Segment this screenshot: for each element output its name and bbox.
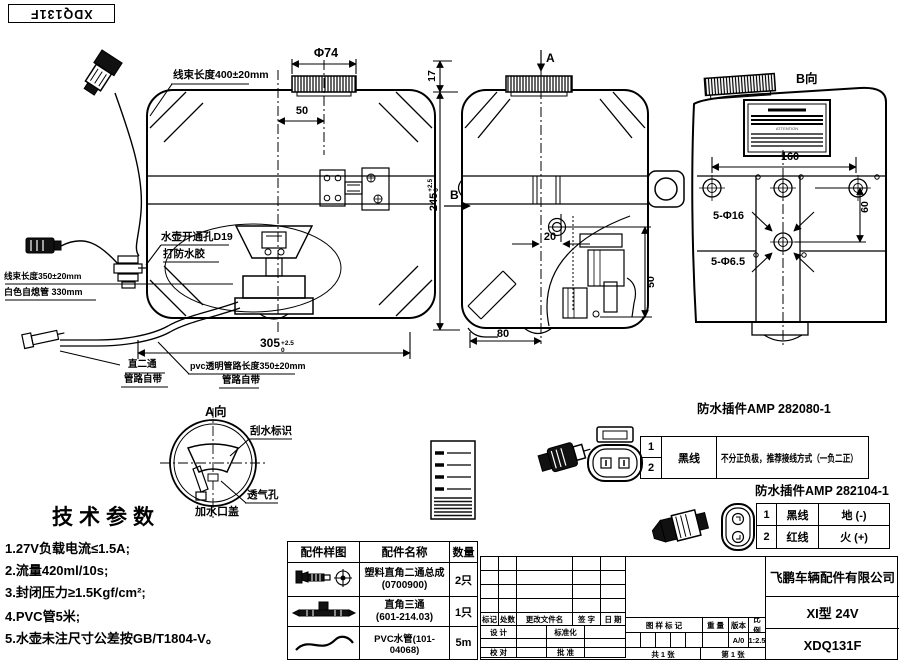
tee-fitting-icon [291, 599, 357, 625]
part-name-1: 塑料直角二通总成 (0700900) [360, 563, 450, 597]
drawing-number: XDQ131F [766, 629, 899, 660]
sensor-connector [26, 238, 61, 253]
sheet-count-row: 共 1 张 第 1 张 [626, 648, 766, 660]
check-row: 校 对 批 准 [481, 648, 626, 658]
elbow-fitting-icon [291, 565, 357, 595]
blank-row [481, 639, 626, 648]
harness-400-label: 线束长度400±20mm [173, 70, 269, 82]
tech-param-item: 2.流量420ml/10s; [5, 564, 108, 578]
middle-empty-box [626, 557, 766, 618]
conn1-wire-color: 黑线 [662, 437, 717, 478]
vent-hole-label: 透气孔 [247, 490, 279, 502]
sheet-number-stamp: XDQ131F [8, 4, 115, 23]
connector1-pictogram [537, 427, 642, 481]
mark-header-row: 图 样 标 记 重 量 版本 比 例 [626, 618, 766, 633]
tb-std: 标准化 [547, 626, 585, 639]
tech-param-item: 1.27V负载电流≤1.5A; [5, 542, 130, 556]
tb-sheet-total: 共 1 张 [626, 648, 701, 660]
tb-sign: 签 字 [573, 613, 601, 626]
tech-param-item: 4.PVC管5米; [5, 610, 80, 624]
dim-20: 20 [544, 231, 556, 243]
cap-diameter-dim: Φ74 [314, 47, 338, 61]
parts-table: 配件样图 配件名称 数量 塑料直角二通总成 (070 [287, 541, 478, 660]
a-view-title: A向 [205, 406, 227, 420]
conn1-pin-1: 1 [641, 437, 662, 458]
revision-grid [481, 557, 626, 613]
title-block-right: 飞鹏车辆配件有限公司 XI型 24V XDQ131F [766, 557, 899, 660]
tb-weight: 重 量 [703, 618, 729, 633]
side-view-drawing [444, 50, 684, 344]
tb-design: 设 计 [481, 626, 517, 639]
tb-check: 校 对 [481, 648, 517, 658]
tech-param-item: 3.封闭压力≥1.5Kgf/cm²; [5, 586, 146, 600]
part-qty-2: 1只 [450, 597, 477, 627]
part-name-3: PVC水管(101-04068) [360, 627, 450, 659]
tb-approve: 批 准 [547, 648, 585, 658]
tb-version-value: A/0 [729, 633, 749, 648]
conn2-pin-1: 1 [757, 504, 777, 526]
tee-label-line1: 直二通 [128, 360, 157, 370]
conn2-desc-2: 火 (+) [819, 526, 889, 548]
dim-80: 80 [497, 328, 509, 340]
part-qty-1: 2只 [450, 563, 477, 597]
connector1-title: 防水插件AMP 282080-1 [697, 403, 831, 417]
part-qty-3: 5m [450, 627, 477, 659]
design-row: 设 计 标准化 [481, 626, 626, 639]
engineering-drawing-sheet: XDQ131F 线束长度400±20mm Φ74 50 17 245+2.50 … [0, 0, 900, 660]
part-sample-hose [288, 627, 360, 659]
dim-305-value: 305 [260, 336, 280, 350]
front-view-drawing [22, 50, 435, 348]
dim-50-side: 50 [646, 267, 658, 297]
dim-17: 17 [427, 62, 439, 90]
model-name: XI型 24V [766, 597, 899, 629]
tb-file: 更改文件名 [517, 613, 573, 626]
tb-sample-mark: 图 样 标 记 [626, 618, 703, 633]
tb-mark: 标记 [481, 613, 499, 626]
tank-hole-label-line1: 水壶开通孔D19 [161, 232, 233, 244]
dim-160: 160 [781, 151, 799, 163]
part-sample-tee [288, 597, 360, 627]
tech-param-item: 5.水壶未注尺寸公差按GB/T1804-V。 [5, 632, 219, 646]
stamp-text: XDQ131F [30, 7, 93, 21]
conn1-note: 不分正负极，推荐接线方式（一负二正） [717, 437, 868, 478]
tb-sheet-no: 第 1 张 [701, 648, 766, 660]
connector2-pin-table: 1 黑线 地 (-) 2 红线 火 (+) [756, 503, 890, 549]
tech-params-title: 技术参数 [52, 506, 160, 529]
dim-245: 245+2.50 [426, 167, 442, 223]
parts-header-qty: 数量 [450, 542, 477, 563]
title-block: 标记 处数 更改文件名 签 字 日 期 设 计 标准化 校 对 批 准 [dat… [480, 556, 898, 660]
pvc-tube-label-line2: 管路自带 [222, 376, 260, 386]
parts-header-name: 配件名称 [360, 542, 450, 563]
dim-50-front: 50 [296, 105, 308, 117]
section-b-arrow-label: B [450, 189, 459, 202]
tank-hole-label-line2: 打防水胶 [163, 249, 205, 261]
dim-305-tolerance: +2.50 [281, 341, 294, 354]
conn2-wire-2: 红线 [777, 526, 819, 548]
connector1-pin-table: 1 2 黑线 不分正负极，推荐接线方式（一负二正） [640, 436, 869, 479]
part-sample-elbow [288, 563, 360, 597]
parts-header-sample: 配件样图 [288, 542, 360, 563]
tube-end-fitting [22, 326, 66, 348]
filler-cap-label: 加水口盖 [195, 506, 239, 518]
wiper-mark-label: 刮水标识 [250, 426, 292, 438]
tb-date: 日 期 [601, 613, 626, 626]
pump-harness-connector [79, 50, 122, 98]
tb-scale: 比 例 [749, 618, 766, 633]
attention-text: ATTENTION [776, 127, 798, 131]
connector2-title: 防水插件AMP 282104-1 [755, 485, 889, 499]
mark-value-row: A/0 1:2.5 [626, 633, 766, 648]
conn2-desc-1: 地 (-) [819, 504, 889, 526]
conn2-wire-1: 黑线 [777, 504, 819, 526]
tb-version: 版本 [729, 618, 749, 633]
holes-65-callout: 5-Φ6.5 [711, 256, 745, 268]
company-name: 飞鹏车辆配件有限公司 [766, 557, 899, 597]
white-tube-label: 白色自熄管 330mm [4, 288, 83, 298]
dim-245-tolerance: +2.50 [428, 179, 441, 192]
b-view-title: B向 [796, 73, 818, 87]
revision-header-row: 标记 处数 更改文件名 签 字 日 期 [481, 613, 626, 626]
holes-16-callout: 5-Φ16 [713, 210, 744, 222]
conn2-pin-2: 2 [757, 526, 777, 548]
pvc-hose-icon [291, 630, 357, 656]
tee-label-line2: 管路自带 [124, 375, 162, 385]
pvc-tube-label-line1: pvc透明管路长度350±20mm [190, 362, 305, 372]
tb-scale-value: 1:2.5 [749, 633, 766, 648]
harness-350-label: 线束长度350±20mm [4, 272, 81, 281]
tb-count: 处数 [499, 613, 517, 626]
dim-60: 60 [860, 191, 872, 223]
part-name-2: 直角三通 (601-214.03) [360, 597, 450, 627]
section-a-arrow-label: A [546, 52, 555, 65]
dim-305: 305+2.50 [260, 337, 294, 354]
spec-label-drawing [431, 441, 475, 519]
connector2-pictogram [650, 504, 754, 550]
dim-245-value: 245 [428, 193, 440, 211]
conn1-pin-2: 2 [641, 458, 662, 479]
